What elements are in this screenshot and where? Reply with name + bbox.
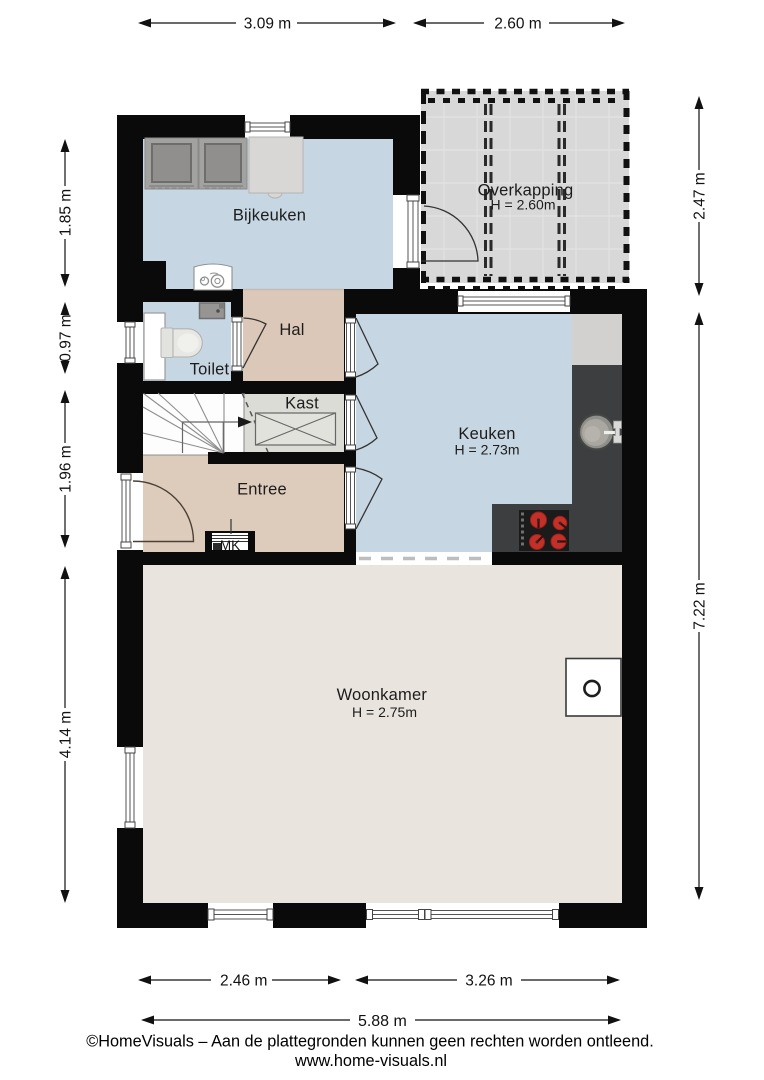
svg-text:3.26 m: 3.26 m — [465, 972, 512, 989]
svg-text:Kast: Kast — [285, 395, 319, 413]
svg-text:H = 2.60m: H = 2.60m — [491, 197, 556, 213]
svg-text:www.home-visuals.nl: www.home-visuals.nl — [294, 1052, 447, 1070]
svg-text:Hal: Hal — [279, 321, 304, 339]
svg-text:2.46 m: 2.46 m — [220, 972, 267, 989]
svg-text:5.88 m: 5.88 m — [358, 1013, 407, 1030]
svg-text:H = 2.75m: H = 2.75m — [352, 704, 417, 720]
svg-text:3.09 m: 3.09 m — [244, 16, 291, 33]
svg-text:0.97 m: 0.97 m — [57, 314, 74, 361]
svg-text:Woonkamer: Woonkamer — [337, 686, 428, 704]
svg-text:2.47 m: 2.47 m — [691, 172, 708, 219]
svg-text:Bijkeuken: Bijkeuken — [233, 207, 306, 225]
svg-text:1.96 m: 1.96 m — [57, 445, 74, 492]
svg-text:7.22 m: 7.22 m — [691, 582, 708, 629]
svg-text:Toilet: Toilet — [190, 361, 230, 379]
svg-text:1.85 m: 1.85 m — [57, 189, 74, 236]
svg-text:2.60 m: 2.60 m — [494, 16, 541, 33]
svg-text:Keuken: Keuken — [458, 425, 515, 443]
svg-text:H = 2.73m: H = 2.73m — [455, 442, 520, 458]
svg-text:MK: MK — [220, 538, 240, 553]
svg-text:4.14 m: 4.14 m — [57, 711, 74, 758]
svg-text:Entree: Entree — [237, 481, 287, 499]
svg-text:©HomeVisuals – Aan de plattegr: ©HomeVisuals – Aan de plattegronden kunn… — [86, 1033, 653, 1051]
